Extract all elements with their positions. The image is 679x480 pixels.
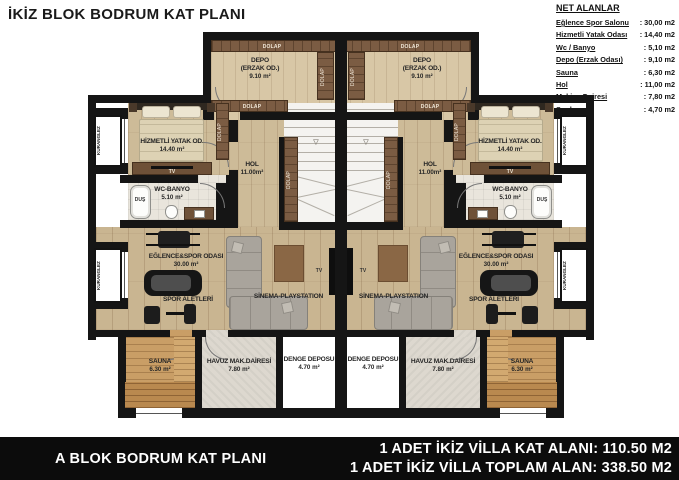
room-name: WC-BANYO [132,186,212,194]
tv-unit: TV [470,162,550,175]
toilet [165,205,178,219]
kuranglez-lower: KURANGLEZ [94,248,122,303]
legend-item-value: : 6,30 m2 [644,67,675,79]
room-name: SAUNA [130,358,190,366]
sauna-bench-bottom [487,382,557,408]
gym-rack [486,304,538,326]
closet-label: DOLAP [350,57,362,97]
sauna-label: SAUNA 6.30 m² [492,358,552,374]
room-name: HAVUZ MAK.DAİRESİ [408,358,478,366]
stair-landing [284,103,341,137]
tv-label: TV [159,169,185,175]
room-area: 30.00 m² [436,261,556,269]
villa-left: ▽ DOLAP [86,30,341,432]
stair-winder-line [348,199,385,216]
wall-stair-closet-side [398,137,403,222]
sofa-pillow [281,301,294,314]
kuranglez-label: KURANGLEZ [96,250,120,301]
hol-label: HOL 11.00m² [410,161,450,177]
stair-down-arrow: ▽ [358,139,374,148]
wall-top-protrusion [341,32,479,40]
closet-label: DOLAP [380,44,440,50]
wall-center-shared [335,32,347,416]
bed-pillow [481,106,509,118]
sink-bowl [477,210,488,218]
sport-room-label: EĞLENCE&SPOR ODASI 30.00 m² [126,253,246,269]
spor-aletleri-label: SPOR ALETLERİ [138,296,238,304]
cinema-tv [347,248,353,295]
room-name: DENGE DEPOSU [280,356,338,364]
dus-label: DUŞ [530,197,554,203]
room-name: HİZMETLİ YATAK OD. [460,138,560,146]
stair-winder-line [296,189,335,198]
closet-label: DOLAP [320,57,332,97]
room-area: 14.40 m² [122,146,222,154]
stair-winder-line [346,176,385,187]
sinema-label: SİNEMA-PLAYSTATION [236,293,341,301]
wall-havuz-divider [399,337,406,408]
legend-title: NET ALANLAR [556,3,675,13]
sinema-label: SİNEMA-PLAYSTATION [341,293,446,301]
wall-sauna-row-top [341,330,564,337]
havuz-label: HAVUZ MAK.DAİRESİ 7.80 m² [408,358,478,374]
gym-rack [144,304,196,326]
closet-label: DOLAP [386,158,396,203]
sauna-label: SAUNA 6.30 m² [130,358,190,374]
legend-item-value: : 5,10 m2 [644,42,675,54]
room-area: 11.00m² [410,169,450,177]
bed-pillow [173,106,201,118]
gym-weight [184,304,196,324]
nightstand-left [129,103,137,112]
gym-treadmill-belt [151,275,191,291]
gym-treadmill [144,270,202,296]
kuranglez-upper: KURANGLEZ [94,115,122,167]
staircase: ▽ [347,137,384,222]
closet-label: DOLAP [222,104,282,110]
stair-closet: DOLAP [384,137,398,222]
stair-winder-line [296,176,335,187]
legend-item-name: Eğlence Spor Salonu [556,17,629,29]
gym-bar [146,244,200,246]
room-area: 14.40 m² [460,146,560,154]
room-area: 9.10 m² [382,73,462,81]
legend-item-value: : 4,70 m2 [644,104,675,116]
door-gap-wc [456,175,484,183]
spor-aletleri-label: SPOR ALETLERİ [444,296,544,304]
room-name: (ERZAK OD.) [220,65,300,73]
sport-room-label: EĞLENCE&SPOR ODASI 30.00 m² [436,253,556,269]
footer-bar: A BLOK BODRUM KAT PLANI 1 ADET İKİZ VİLL… [0,437,679,480]
room-name: HOL [232,161,272,169]
denge-label: DENGE DEPOSU 4.70 m² [280,356,338,372]
stair-landing [341,103,398,137]
kuranglez-label: KURANGLEZ [562,117,586,165]
gym-treadmill-belt [491,275,531,291]
room-area: 4.70 m² [344,364,402,372]
depo-closet-side: DOLAP [317,52,334,100]
wall-top-protrusion [203,32,341,40]
floor-plan: ▽ DOLAP [86,30,596,432]
cinema-rug [274,245,304,282]
legend-item-value: : 9,10 m2 [644,54,675,66]
room-name: DEPO [382,57,462,65]
legend-item-value: : 14,40 m2 [640,29,675,41]
door-gap-sauna [170,330,192,337]
nightstand-right [207,103,215,112]
tv-label: TV [356,268,370,274]
room-name: EĞLENCE&SPOR ODASI [436,253,556,261]
legend-item-value: : 7,80 m2 [644,91,675,103]
page-title: İKİZ BLOK BODRUM KAT PLANI [8,6,246,23]
bedroom-label: HİZMETLİ YATAK OD. 14.40 m² [122,138,222,154]
door-gap-wc [198,175,226,183]
toilet [504,205,517,219]
gym-bar [482,244,536,246]
footer-plan-title: A BLOK BODRUM KAT PLANI [55,437,267,480]
closet-label: DOLAP [286,158,296,203]
gym-weight [144,306,160,324]
kuranglez-lower: KURANGLEZ [560,248,588,303]
sofa-pillow [388,301,401,314]
room-name: HOL [410,161,450,169]
kuranglez-label: KURANGLEZ [562,250,586,301]
tv-label: TV [312,268,326,274]
door-gap-havuz [454,330,476,337]
room-area: 4.70 m² [280,364,338,372]
denge-label: DENGE DEPOSU 4.70 m² [344,356,402,372]
room-area: 30.00 m² [126,261,246,269]
sauna-window [500,408,546,418]
room-name: EĞLENCE&SPOR ODASI [126,253,246,261]
room-area: 6.30 m² [492,366,552,374]
room-name: HİZMETLİ YATAK OD. [122,138,222,146]
wall-sauna-divider [195,337,202,408]
sink-bowl [194,210,205,218]
wall-stair-bottom [279,222,341,230]
gym-treadmill [480,270,538,296]
room-area: 6.30 m² [130,366,190,374]
sauna-bench-bottom [125,382,195,408]
staircase: ▽ [298,137,335,222]
legend-item-value: : 30,00 m2 [640,17,675,29]
stair-down-arrow: ▽ [308,139,324,148]
bed-pillow [512,106,540,118]
footer-total-area: 1 ADET İKİZ VİLLA TOPLAM ALAN: 338.50 M2 [350,459,672,478]
cinema-rug [378,245,408,282]
balance-tank-floor [347,337,399,408]
room-area: 7.80 m² [408,366,478,374]
sauna-window [136,408,182,418]
wall-sauna-row-top [118,330,341,337]
stair-winder-line [298,199,335,216]
depo-closet-top: DOLAP [341,40,471,52]
wall-stair-bottom [341,222,403,230]
depo-closet-top: DOLAP [211,40,341,52]
legend-row: Eğlence Spor Salonu: 30,00 m2 [556,17,675,29]
room-name: DEPO [220,57,300,65]
footer-floor-area: 1 ADET İKİZ VİLLA KAT ALANI: 110.50 M2 [350,440,672,459]
room-area: 7.80 m² [204,366,274,374]
depo-label: DEPO (ERZAK OD.) 9.10 m² [382,57,462,81]
bed-pillow [142,106,170,118]
closet-label: DOLAP [400,104,460,110]
kuranglez-label: KURANGLEZ [96,117,120,165]
door-gap-havuz [206,330,228,337]
closet-label: DOLAP [242,44,302,50]
room-name: DENGE DEPOSU [344,356,402,364]
nightstand-right [467,103,475,112]
depo-closet-side: DOLAP [348,52,365,100]
wall-bottom-row-left [556,330,564,416]
room-area: 11.00m² [232,169,272,177]
gym-weight [486,304,498,324]
nightstand-left [545,103,553,112]
screen: İKİZ BLOK BODRUM KAT PLANI NET ALANLAR E… [0,0,679,480]
bedroom-label: HİZMETLİ YATAK OD. 14.40 m² [460,138,560,154]
sink-vanity [468,207,498,220]
wall-stair-closet-side [279,137,284,222]
stair-winder-line [346,189,385,198]
sink-vanity [184,207,214,220]
room-name: WC-BANYO [470,186,550,194]
room-name: (ERZAK OD.) [382,65,462,73]
gym-bar-machine [146,231,200,249]
door-gap-sauna [490,330,512,337]
depo-label: DEPO (ERZAK OD.) 9.10 m² [220,57,300,81]
room-name: HAVUZ MAK.DAİRESİ [204,358,274,366]
tv-label: TV [497,169,523,175]
kuranglez-upper: KURANGLEZ [560,115,588,167]
dus-label: DUŞ [128,197,152,203]
hol-label: HOL 11.00m² [232,161,272,177]
villa-right: ▽ DOLAP [341,30,596,432]
balance-tank-floor [283,337,335,408]
room-area: 9.10 m² [220,73,300,81]
wall-wing-top [471,95,594,103]
room-name: SAUNA [492,358,552,366]
wall-wing-top [88,95,211,103]
legend-item-value: : 11,00 m2 [640,79,675,91]
wall-sauna-divider [480,337,487,408]
gym-bar-machine [482,231,536,249]
stair-closet: DOLAP [284,137,298,222]
footer-area-totals: 1 ADET İKİZ VİLLA KAT ALANI: 110.50 M2 1… [350,440,672,478]
gym-weight [522,306,538,324]
tv-unit: TV [132,162,212,175]
havuz-label: HAVUZ MAK.DAİRESİ 7.80 m² [204,358,274,374]
wall-havuz-divider [276,337,283,408]
